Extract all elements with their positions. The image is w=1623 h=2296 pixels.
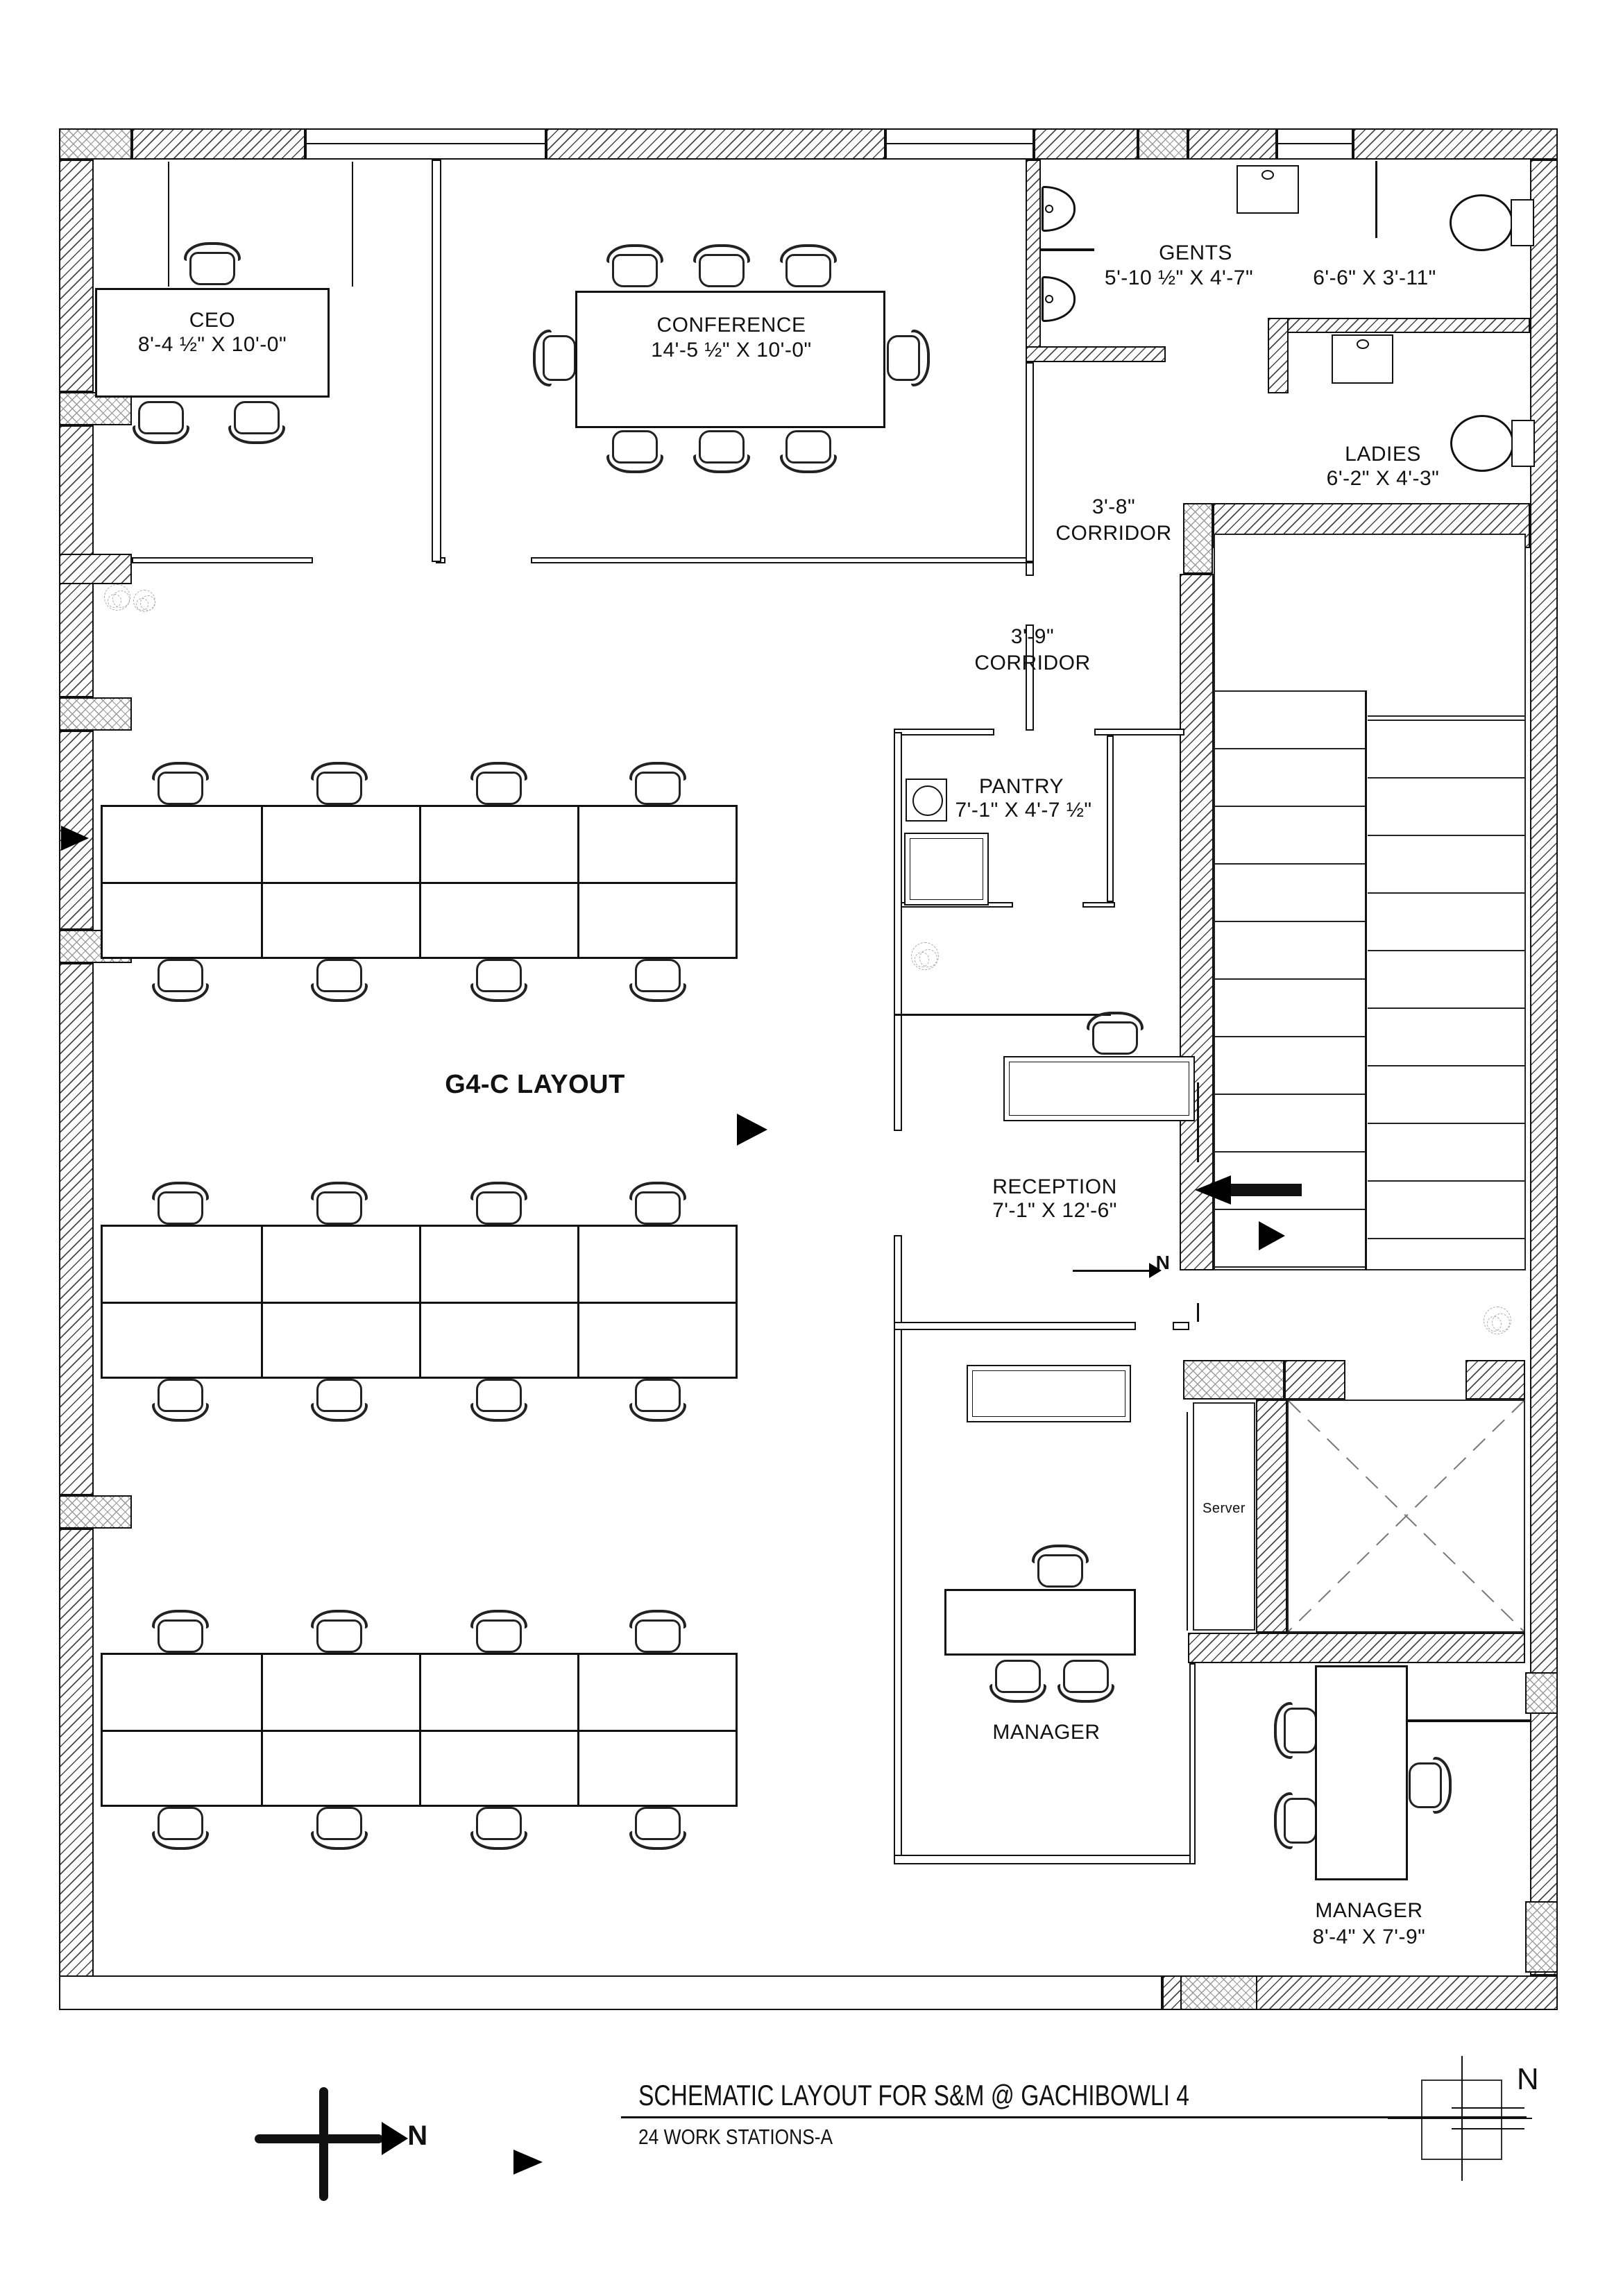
chair [628,1805,688,1850]
wall-hatch [1180,574,1214,1270]
wall-hatch [59,963,94,1495]
chair-back [911,330,930,386]
plant-icon [911,942,944,976]
chair-back [470,1182,527,1200]
wall-line [1187,1412,1188,1631]
title-rule [621,2116,1527,2118]
chair-back [152,1610,209,1629]
workstation-table [101,1225,738,1379]
ladies-room-label: LADIES [1345,443,1421,466]
wall-column [1138,128,1188,160]
chair [628,958,688,1002]
corridor-39-width: 3'-9" [1011,625,1054,649]
reception-desk [1003,1056,1195,1121]
chair [628,762,688,806]
wall-column [1180,1975,1257,2010]
ladies-toilet-icon [1450,415,1514,472]
wall-hatch [1284,1360,1345,1400]
urinal-icon [1042,186,1076,232]
chair [605,244,665,289]
conference-room-dims: 14'-5 ½" X 10'-0" [651,339,811,362]
chair-back [1057,1684,1114,1703]
manager1-desk [944,1589,1136,1656]
chair [309,1805,369,1850]
wall-partition [1026,362,1034,562]
wall-hatch [59,1529,94,1988]
pantry-room-label: PANTRY [979,775,1064,799]
chair [227,400,287,444]
wall-line [1408,1719,1530,1722]
chair [469,1610,529,1654]
chair [309,958,369,1002]
stair-center-line [1365,690,1367,1270]
chair-back [152,762,209,781]
manager2-room-label: MANAGER [1315,1899,1422,1923]
wall-hatch [1188,128,1277,160]
chair [469,1377,529,1422]
wall-hatch [59,554,132,584]
urinal-icon [1042,276,1076,322]
chair-back [470,1831,527,1850]
chair [692,429,751,473]
chair [605,429,665,473]
elevator-x-icon [1289,1401,1524,1631]
ladies-toilet-icon-tank [1511,420,1535,467]
chair [151,762,210,806]
wall-line [1040,248,1094,251]
chair [533,328,577,388]
chair-back [693,454,750,473]
wall-hatch [1034,128,1138,160]
plant-icon [133,590,161,618]
compass-arrow-icon [382,2122,408,2155]
wall-hatch [1268,318,1530,333]
wall-partition [1189,1663,1196,1864]
chair-back [629,1831,686,1850]
chair-back [606,244,663,263]
wall-column [1525,1901,1558,1973]
chair [151,1182,210,1226]
chair-back [629,1182,686,1200]
wall-line [894,1014,1111,1016]
chair [309,1182,369,1226]
floor-plan: CEO 8'-4 ½" X 10'-0" CONFERENCE 14'-5 ½"… [0,0,1623,2296]
chair-back [152,1403,209,1422]
pantry-sink-icon [906,779,947,822]
north-symbol-label: N [1517,2062,1539,2097]
wall-hatch [1026,346,1166,362]
chair-back [533,330,552,386]
chair-back [133,425,189,444]
chair-back [152,983,209,1002]
wall-hatch [1353,128,1558,160]
elevator-shaft [1287,1400,1525,1633]
chair [628,1182,688,1226]
wall-line [305,143,546,144]
wall-line [885,143,1034,144]
wall-partition [432,160,441,562]
gents-wash-dims: 6'-6" X 3'-11" [1313,266,1436,290]
drawing-title: SCHEMATIC LAYOUT FOR S&M @ GACHIBOWLI 4 [638,2079,1189,2112]
plant-icon [104,584,136,616]
wall-partition [894,1322,1136,1330]
chair [1274,1791,1318,1851]
chair-back [311,762,368,781]
wall-line [1375,161,1377,238]
chair-back [629,983,686,1002]
north-symbol-hline2 [1452,2107,1524,2109]
chair-back [470,1610,527,1629]
chair [309,1610,369,1654]
wall-partition [1082,902,1115,908]
wall-partition [1026,562,1034,576]
wall-column [59,1495,132,1529]
chair [1274,1701,1318,1760]
chair-back [629,1403,686,1422]
chair [885,328,930,388]
chair-back [470,1403,527,1422]
chair-back [693,244,750,263]
wall-partition [894,729,994,735]
wall-hatch [546,128,885,160]
wall-column [1525,1672,1558,1714]
chair-back [1087,1012,1144,1030]
chair [988,1658,1048,1703]
manager1-room-label: MANAGER [992,1721,1100,1744]
wall-line [1277,143,1353,144]
wall-line [1197,1082,1199,1162]
chair-back [152,1182,209,1200]
chair-back [780,454,837,473]
chair-back [184,242,241,261]
chair-back [629,1610,686,1629]
conference-room-label: CONFERENCE [656,314,806,337]
wall-hatch [1256,1400,1287,1633]
chair [182,242,242,287]
wall-partition [1094,729,1184,735]
chair [1407,1755,1452,1815]
chair-back [629,762,686,781]
chair [779,244,838,289]
chair-back [311,1403,368,1422]
chair [628,1377,688,1422]
ceo-room-dims: 8'-4 ½" X 10'-0" [138,333,287,357]
chair [1030,1545,1090,1589]
workstation-table [101,805,738,959]
chair [1056,1658,1116,1703]
center-arrow-icon [737,1114,767,1146]
wall-partition [59,1975,1162,2010]
chair-back [228,425,285,444]
gents-room-dims: 5'-10 ½" X 4'-7" [1105,266,1253,290]
chair [469,1805,529,1850]
compass-north-label: N [407,2120,427,2152]
chair-back [1274,1792,1293,1849]
chair-back [1032,1545,1089,1563]
plan-title-label: G4-C LAYOUT [445,1070,625,1100]
chair [309,1377,369,1422]
chair [131,400,191,444]
corridor-38-label: CORRIDOR [1055,522,1171,545]
wall-partition [132,557,313,563]
chair [1085,1012,1145,1056]
chair [779,429,838,473]
wall-hatch [132,128,305,160]
chair-back [311,1610,368,1629]
chair [469,762,529,806]
wall-line [1197,1303,1199,1322]
gents-room-label: GENTS [1159,241,1232,265]
chair [469,958,529,1002]
wall-line [168,162,169,287]
north-symbol-hline3 [1452,2128,1524,2129]
chair-back [780,244,837,263]
reception-room-dims: 7'-1" X 12'-6" [992,1199,1117,1223]
wall-hatch [1188,1633,1525,1663]
wall-hatch [1026,160,1041,362]
chair [469,1182,529,1226]
wall-column [1183,503,1213,574]
wall-partition [894,1855,1196,1864]
drawing-subtitle: 24 WORK STATIONS-A [638,2125,833,2150]
chair-back [1433,1757,1452,1814]
gents-sink-icon [1237,165,1299,214]
stair-flight-right [1368,690,1524,1270]
chair-back [152,1831,209,1850]
compass-horizontal-bar [255,2134,383,2143]
reception-north-label: N [1156,1252,1171,1274]
wall-line [352,162,353,287]
ladies-room-dims: 6'-2" X 4'-3" [1327,467,1440,491]
chair-back [470,983,527,1002]
wall-hatch [1268,318,1289,393]
chair-back [311,983,368,1002]
chair-back [311,1182,368,1200]
wall-column [1183,1360,1284,1400]
gents-toilet-icon [1450,194,1513,251]
chair-back [606,454,663,473]
chair-back [311,1831,368,1850]
reception-arrow-shaft [1230,1184,1302,1196]
chair [151,1377,210,1422]
wall-column [59,697,132,731]
wall-hatch [59,160,94,392]
ladies-sink-icon [1332,334,1393,384]
manager2-desk [1315,1665,1408,1880]
ceo-room-label: CEO [189,309,236,332]
wall-column [59,128,132,160]
pantry-room-dims: 7'-1" X 4'-7 ½" [955,799,1091,822]
gents-toilet-icon-tank [1511,199,1534,246]
chair [151,958,210,1002]
reception-north-line [1073,1270,1150,1272]
chair [151,1610,210,1654]
chair [151,1805,210,1850]
wall-partition [531,557,1034,563]
chair [692,244,751,289]
wall-partition [1107,735,1114,902]
wall-partition [894,732,902,1131]
pantry-counter [904,833,989,905]
chair [628,1610,688,1654]
chair-back [989,1684,1046,1703]
wall-partition [1173,1322,1189,1330]
workstation-table [101,1653,738,1807]
manager2-room-dims: 8'-4" X 7'-9" [1313,1925,1426,1949]
plant-icon [1484,1307,1517,1340]
chair-back [470,762,527,781]
reception-room-label: RECEPTION [992,1175,1117,1199]
chair-back [1274,1702,1293,1759]
server-room-label: Server [1203,1501,1246,1517]
corridor-38-width: 3'-8" [1092,495,1135,519]
manager1-credenza [967,1365,1131,1422]
wall-hatch [1465,1360,1525,1400]
corridor-39-label: CORRIDOR [974,652,1090,675]
chair [309,762,369,806]
bottom-arrow-icon [513,2150,543,2175]
compass-vertical-bar [319,2087,328,2201]
